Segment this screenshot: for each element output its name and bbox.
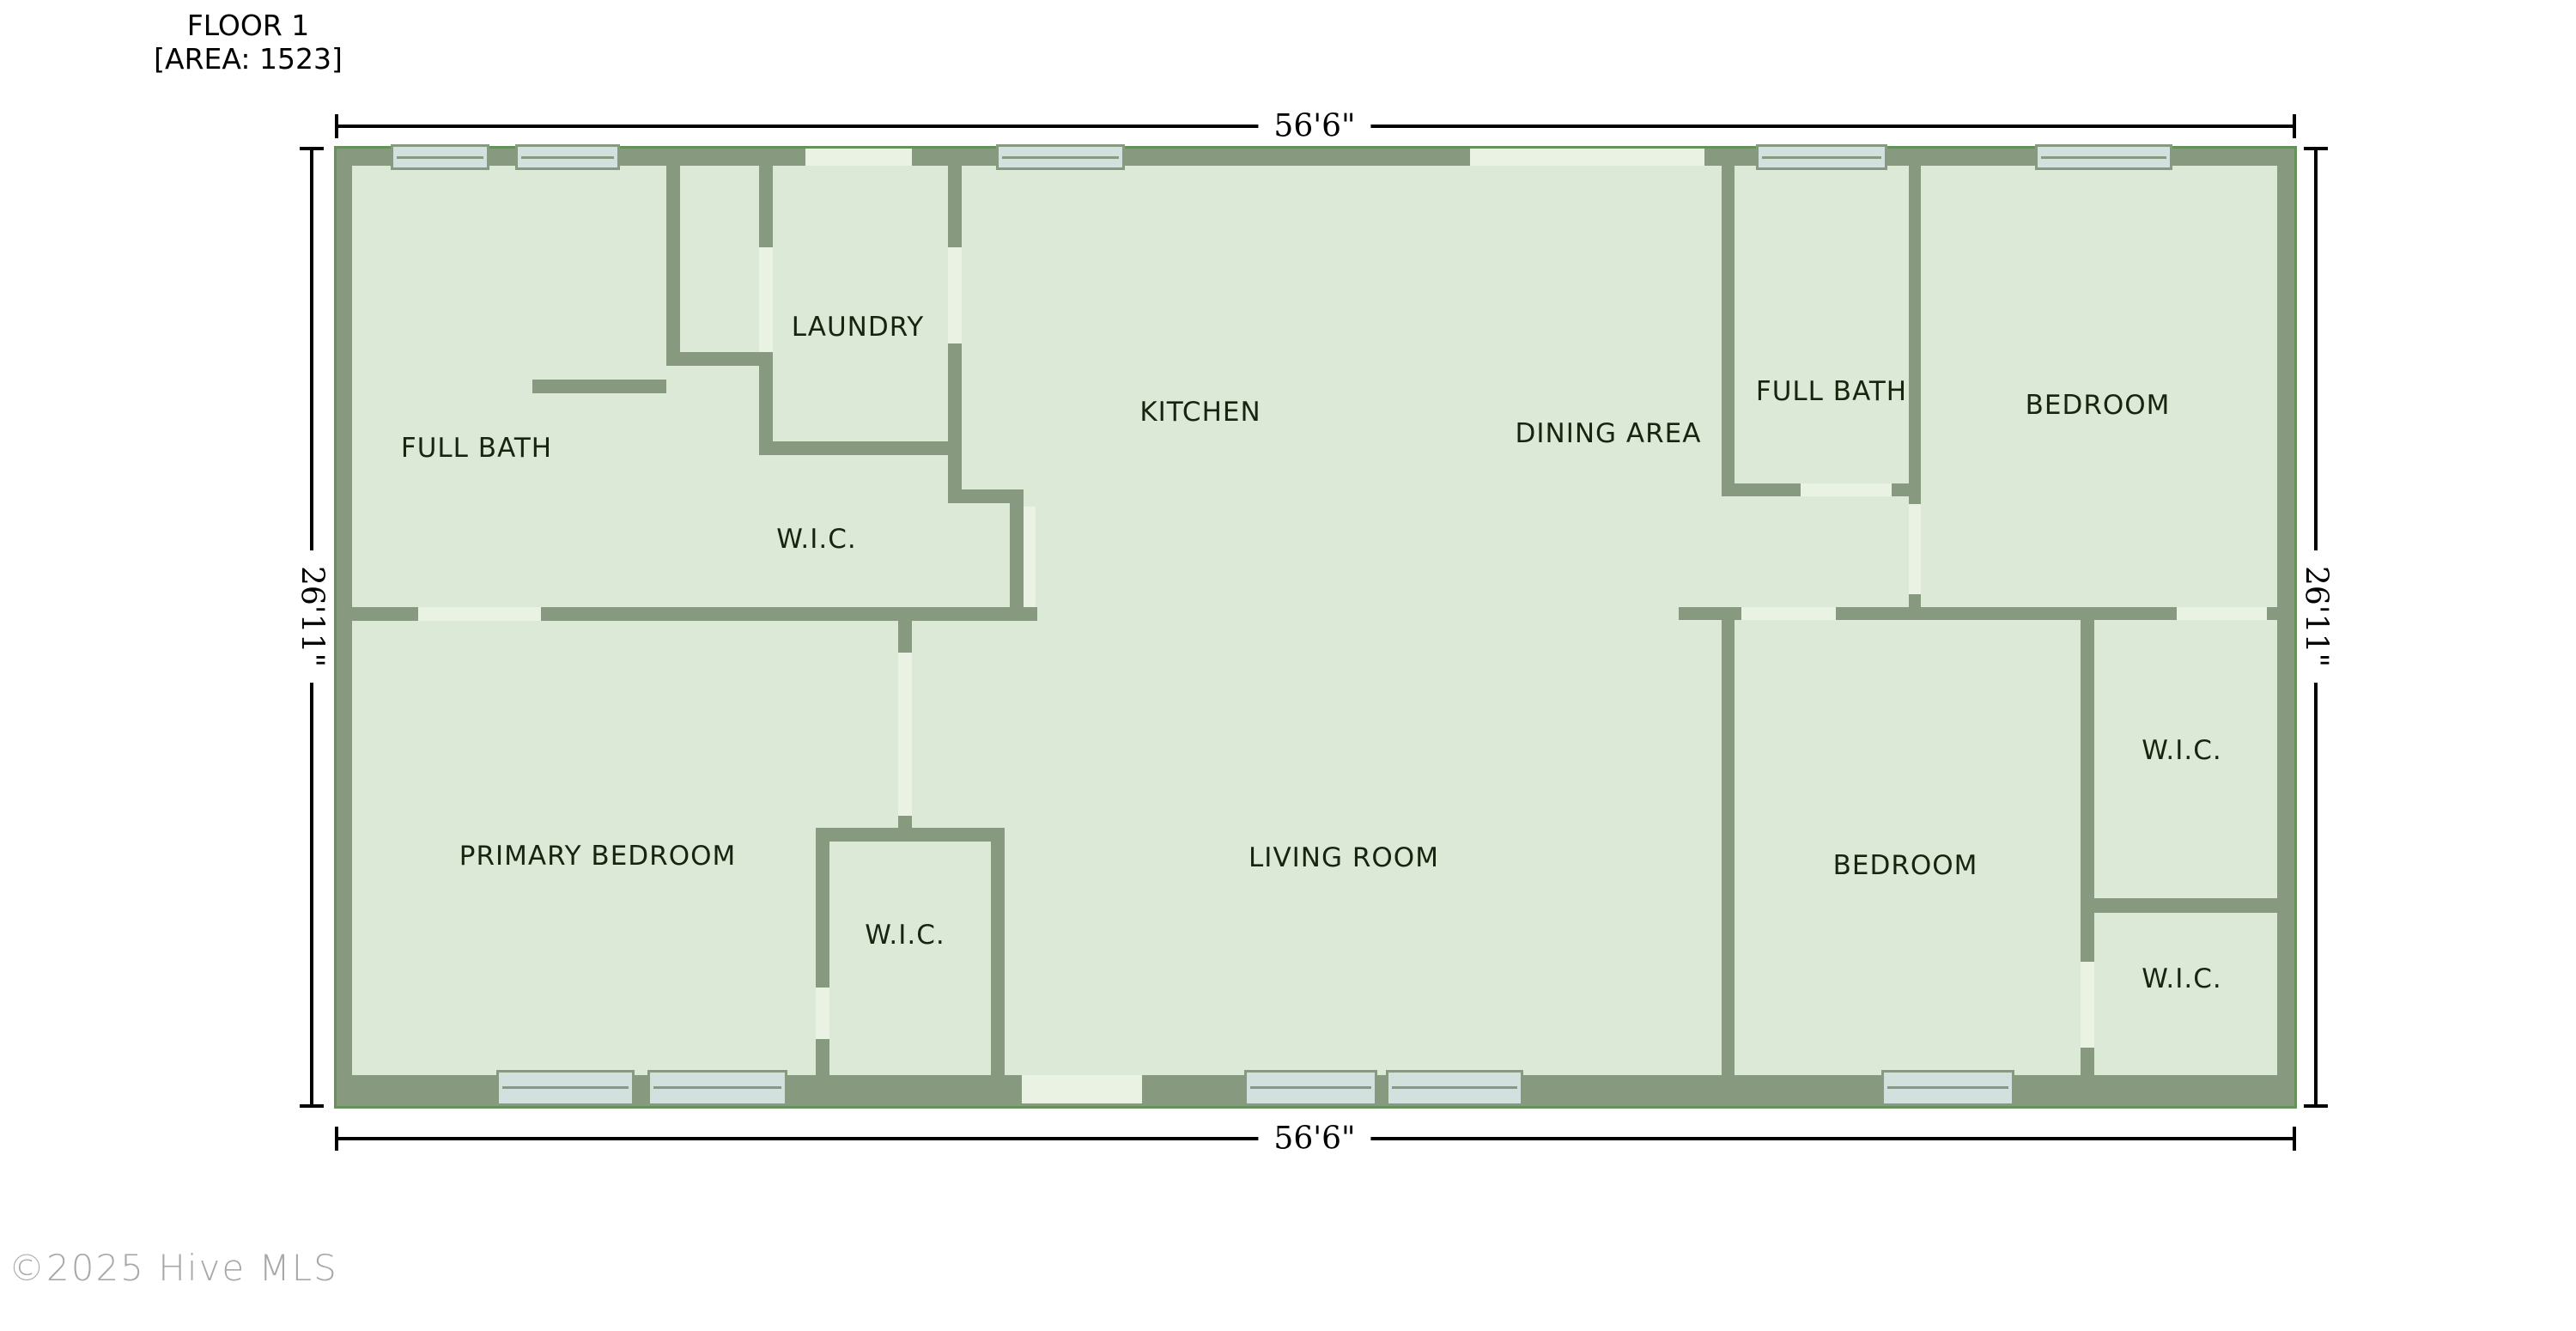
door-opening (1909, 504, 1921, 594)
window (1881, 1070, 2014, 1106)
interior-wall (1722, 166, 1735, 496)
door-opening (418, 607, 541, 621)
room-label: BEDROOM (2026, 390, 2171, 421)
dimension-label-bottom: 56'6" (1258, 1121, 1370, 1157)
interior-wall (759, 352, 773, 455)
window (1756, 144, 1887, 170)
interior-wall (816, 828, 1005, 842)
window (496, 1070, 635, 1106)
window (515, 144, 620, 170)
interior-wall (2081, 898, 2279, 913)
interior-wall (948, 166, 962, 247)
dimension-tick (300, 147, 324, 150)
interior-wall (991, 842, 1005, 1075)
interior-wall (816, 842, 829, 1075)
window (1244, 1070, 1377, 1106)
room-label: W.I.C. (2142, 963, 2221, 994)
window (1386, 1070, 1523, 1106)
interior-wall (666, 166, 680, 366)
dimension-tick (2293, 114, 2296, 138)
window (996, 144, 1125, 170)
door-opening (2177, 607, 2267, 620)
door-opening (1741, 607, 1836, 620)
room-label: FULL BATH (1756, 376, 1907, 407)
dimension-tick (2304, 147, 2328, 150)
door-opening (898, 653, 912, 816)
window (647, 1070, 787, 1106)
room-label: KITCHEN (1139, 397, 1261, 428)
door-opening (805, 149, 912, 166)
room-label: LAUNDRY (792, 312, 924, 343)
room-label: W.I.C. (865, 920, 945, 951)
plan-title: FLOOR 1 [AREA: 1523] (76, 9, 420, 76)
interior-wall (532, 380, 666, 393)
room-label: DINING AREA (1516, 418, 1702, 449)
dimension-label-top: 56'6" (1258, 109, 1370, 144)
room-label: W.I.C. (776, 524, 856, 555)
plan-title-area: [AREA: 1523] (76, 42, 420, 76)
room-label: BEDROOM (1833, 850, 1978, 881)
window (2035, 144, 2172, 170)
dimension-tick (335, 1127, 338, 1151)
dimension-tick (2293, 1127, 2296, 1151)
door-opening (816, 988, 829, 1039)
door-opening (1024, 507, 1036, 607)
door-opening (1022, 1075, 1142, 1103)
door-opening (2081, 962, 2094, 1048)
door-opening (1470, 149, 1704, 166)
door-opening (948, 247, 962, 343)
window (391, 144, 489, 170)
room-label: FULL BATH (401, 433, 552, 464)
room-label: LIVING ROOM (1249, 842, 1439, 873)
interior-wall (759, 441, 962, 455)
dimension-tick (2304, 1104, 2328, 1108)
door-opening (759, 247, 773, 352)
interior-wall (1722, 620, 1735, 1075)
plan-title-floor: FLOOR 1 (76, 9, 420, 42)
dimension-label-right: 26'11" (2299, 550, 2334, 683)
interior-wall (666, 352, 773, 366)
interior-wall (759, 166, 773, 247)
room-label: PRIMARY BEDROOM (459, 841, 737, 872)
door-opening (1801, 483, 1892, 496)
floor-plan-canvas: FLOOR 1 [AREA: 1523] FULL BATHLAUNDRYW.I… (0, 0, 2576, 1331)
room-label: W.I.C. (2142, 735, 2221, 766)
dimension-label-left: 26'11" (295, 550, 330, 683)
watermark: ©2025 Hive MLS (9, 1247, 338, 1289)
dimension-tick (300, 1104, 324, 1108)
interior-wall (948, 343, 962, 503)
interior-wall (1010, 489, 1024, 608)
dimension-tick (335, 114, 338, 138)
